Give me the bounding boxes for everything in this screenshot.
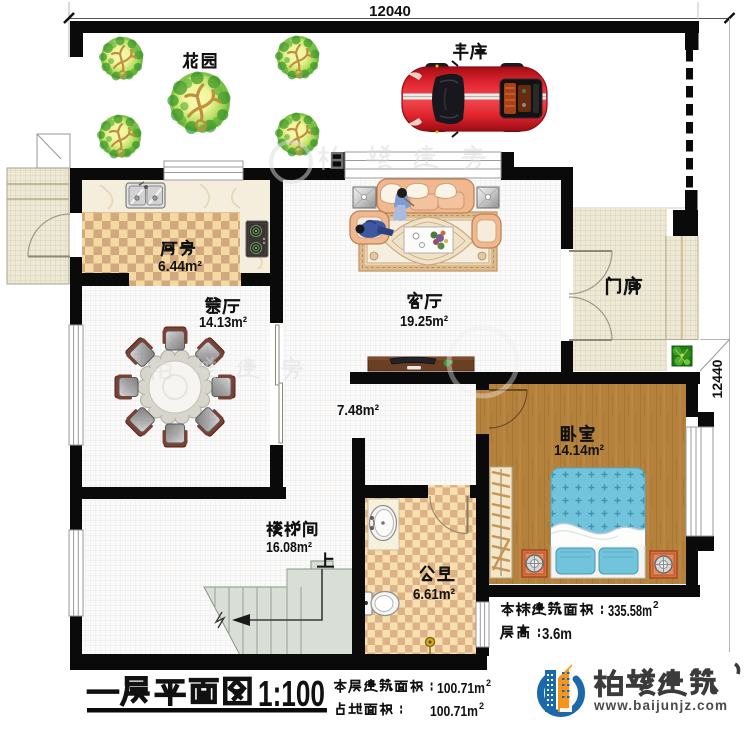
svg-text:16.08m²: 16.08m² [266,540,312,556]
svg-text:12040: 12040 [369,3,411,20]
svg-text:6.61m²: 6.61m² [413,586,455,603]
svg-text:3.6m: 3.6m [542,626,572,643]
svg-text:2: 2 [479,701,484,711]
svg-text:335.58m: 335.58m [608,603,652,620]
svg-text:7.48m²: 7.48m² [337,402,379,419]
svg-text:12440: 12440 [709,359,725,398]
svg-text:www.baijunjz.com: www.baijunjz.com [593,698,728,713]
svg-text:100.71m: 100.71m [437,681,485,697]
svg-text:19.25m²: 19.25m² [400,313,448,330]
svg-text:14.14m²: 14.14m² [554,442,604,459]
svg-text:14.13m²: 14.13m² [199,314,247,331]
svg-text:2: 2 [653,600,659,611]
svg-text:100.71m: 100.71m [430,704,478,720]
svg-text:6.44m²: 6.44m² [158,259,202,275]
svg-text:1:100: 1:100 [258,673,325,714]
svg-text:2: 2 [486,678,491,688]
